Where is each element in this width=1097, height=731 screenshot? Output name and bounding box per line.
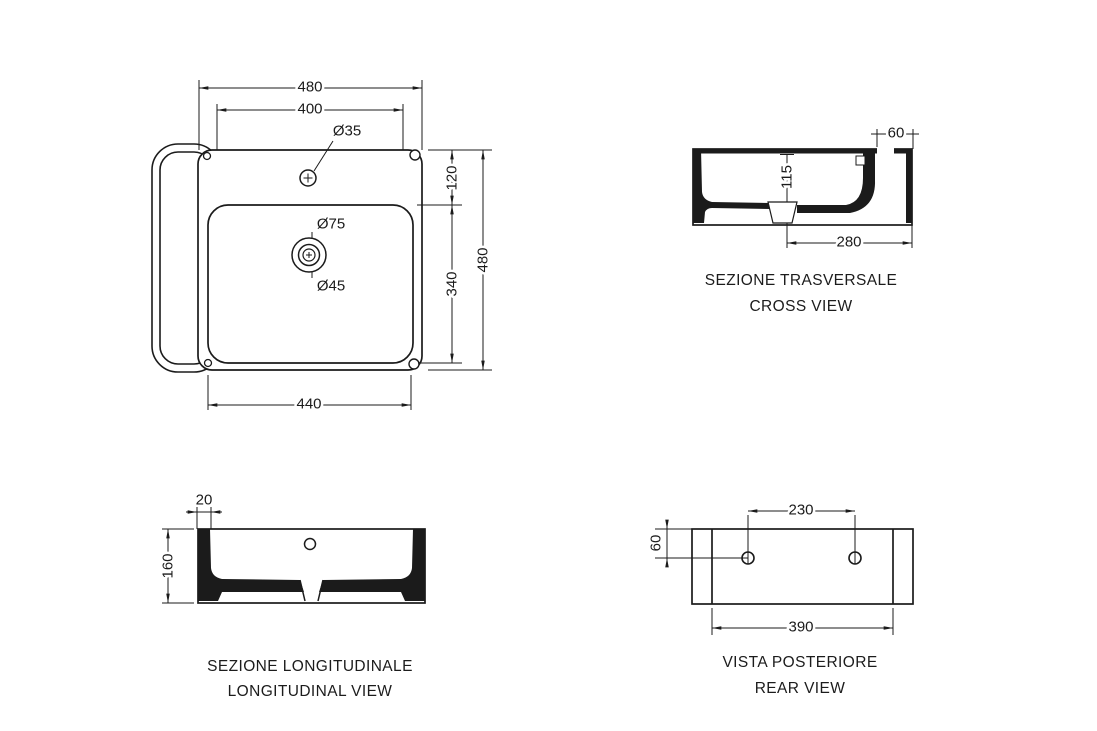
svg-text:390: 390	[788, 619, 813, 636]
dim-tap-hole: Ø35	[333, 123, 361, 140]
svg-text:160: 160	[160, 553, 177, 578]
svg-text:60: 60	[648, 535, 665, 552]
longitudinal-section-drawing: 20 160	[140, 480, 470, 625]
rear-view-caption: VISTA POSTERIORE REAR VIEW	[650, 650, 950, 702]
rear-view-caption-it: VISTA POSTERIORE	[650, 650, 950, 676]
rear-body	[692, 529, 913, 604]
svg-text:120: 120	[444, 165, 461, 190]
svg-text:440: 440	[296, 396, 321, 413]
dim-top-width: 400	[217, 101, 403, 151]
svg-text:20: 20	[196, 492, 213, 509]
cross-section-body	[693, 147, 912, 225]
dim-deck-depth: 120	[417, 150, 492, 205]
inner-bowl-outline	[208, 205, 413, 363]
dim-drain-to-back: 280	[787, 223, 912, 251]
dim-drain-outer: Ø75	[317, 216, 345, 233]
svg-text:280: 280	[836, 234, 861, 251]
dim-bowl-depth: 340	[418, 205, 462, 363]
svg-text:480: 480	[475, 247, 492, 272]
longitudinal-view-caption: SEZIONE LONGITUDINALE LONGITUDINAL VIEW	[140, 654, 480, 704]
cross-view-caption-en: CROSS VIEW	[655, 294, 947, 320]
svg-text:230: 230	[788, 502, 813, 519]
svg-text:480: 480	[297, 79, 322, 96]
cross-view-caption: SEZIONE TRASVERSALE CROSS VIEW	[655, 268, 947, 320]
rear-view-drawing: 230 60 390	[640, 490, 960, 650]
cross-view-caption-it: SEZIONE TRASVERSALE	[655, 268, 947, 294]
dim-mounting-width: 390	[712, 608, 893, 636]
longitudinal-body	[198, 529, 425, 603]
svg-text:115: 115	[779, 165, 796, 189]
cross-section-drawing: 60 115 280	[660, 120, 960, 260]
svg-text:400: 400	[297, 101, 322, 118]
dim-overall-height: 160	[160, 529, 195, 603]
dim-overflow-width: 60	[871, 125, 919, 150]
dim-drain-inner: Ø45	[317, 278, 345, 295]
longitudinal-view-caption-it: SEZIONE LONGITUDINALE	[140, 654, 480, 679]
technical-drawing-sheet: Ø35 Ø75 Ø45 480 400	[0, 0, 1097, 731]
longitudinal-view-caption-en: LONGITUDINAL VIEW	[140, 679, 480, 704]
rear-view-caption-en: REAR VIEW	[650, 676, 950, 702]
dim-bowl-width: 440	[208, 375, 411, 413]
svg-text:60: 60	[888, 125, 905, 142]
plan-view-drawing: Ø35 Ø75 Ø45 480 400	[140, 60, 500, 420]
dim-wall-thickness: 20	[186, 492, 222, 530]
svg-text:340: 340	[444, 271, 461, 296]
